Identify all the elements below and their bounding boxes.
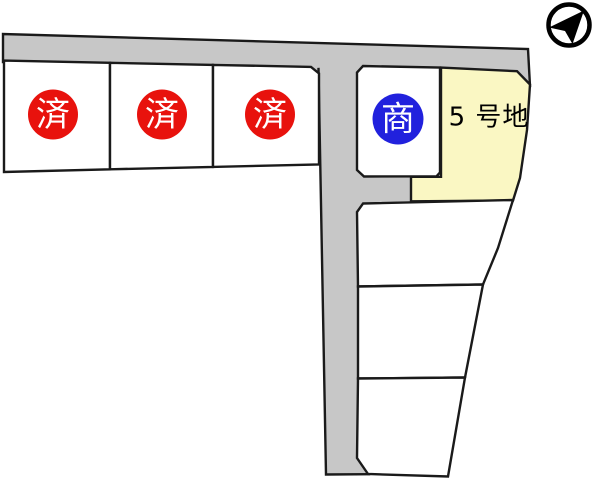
plot-lower-2 [358, 285, 483, 379]
plot-lower-1 [357, 200, 513, 287]
sold-badge-label-3: 済 [253, 95, 287, 135]
negotiation-badge-label: 商 [381, 100, 415, 140]
sold-badge-label-1: 済 [36, 95, 70, 135]
plot-5-label: 5 号地 [449, 103, 530, 133]
plot-lower-3 [357, 378, 465, 477]
subdivision-map: 済 済 済 商 5 号地 [0, 0, 600, 481]
north-arrow-icon [549, 5, 590, 46]
site-map-canvas: 済 済 済 商 5 号地 [0, 0, 600, 481]
sold-badge-label-2: 済 [145, 95, 179, 135]
